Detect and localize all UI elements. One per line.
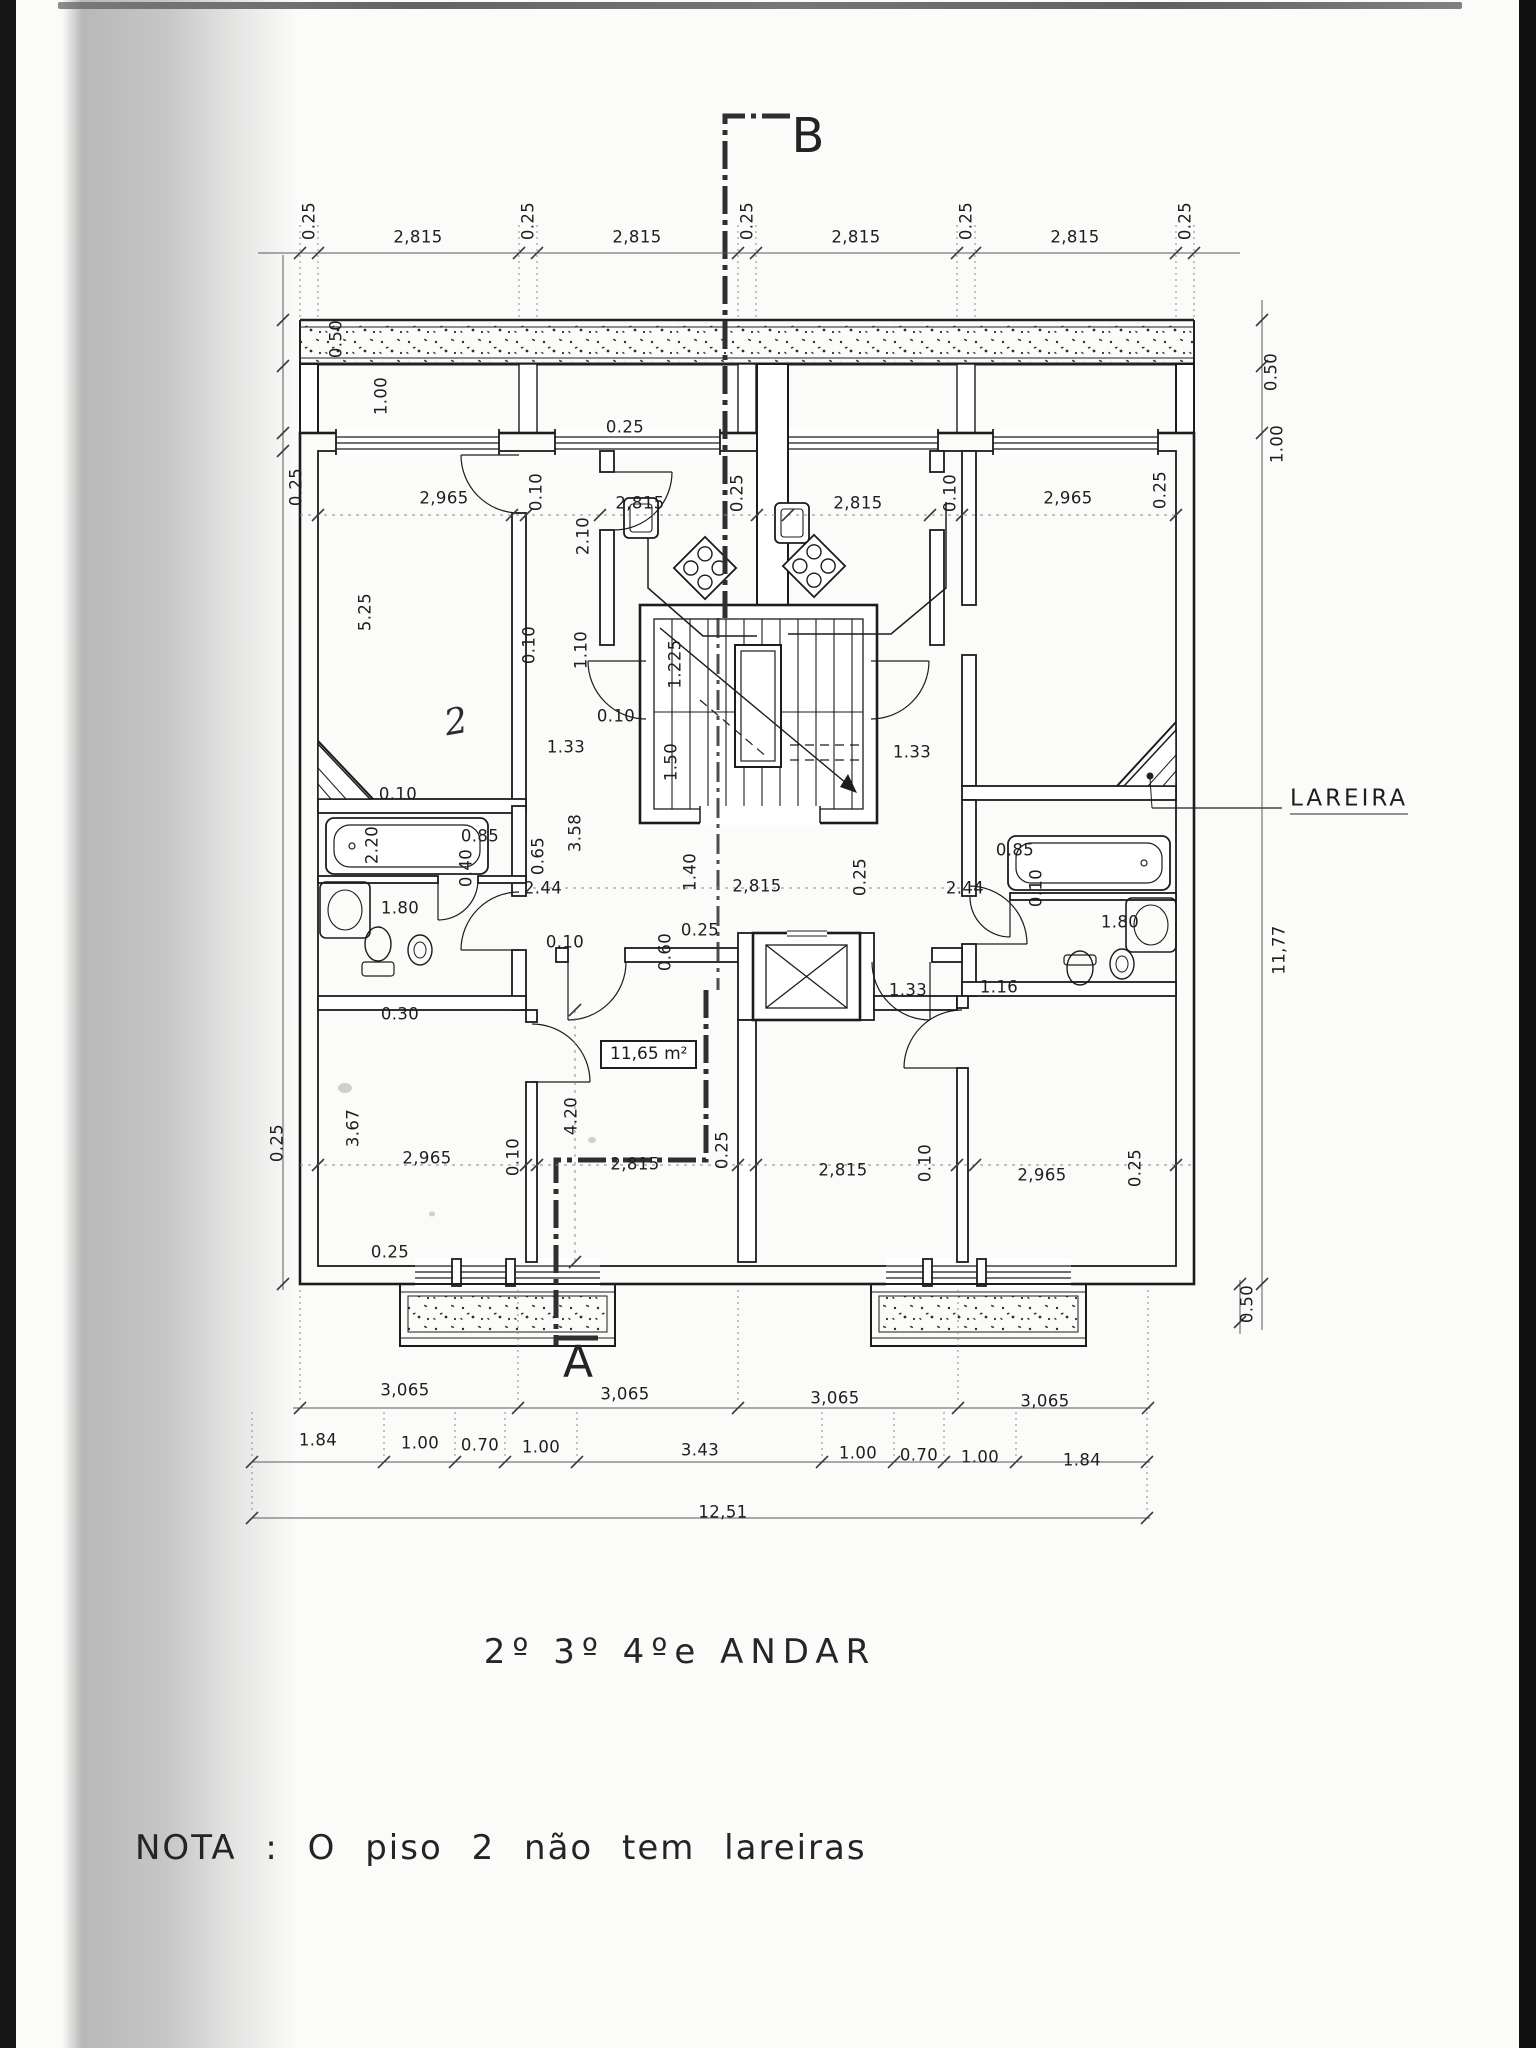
- section-marker-a: A: [563, 1337, 593, 1388]
- staircase: [640, 605, 877, 825]
- room-area-label: 11,65 m²: [600, 1040, 697, 1069]
- bathroom-left: [320, 818, 488, 976]
- bathroom-right: [1008, 836, 1176, 985]
- top-balcony: [300, 320, 1194, 433]
- scan-blemishes: [338, 1083, 596, 1217]
- fireplace-left: [318, 741, 373, 799]
- floorplan-drawing: [0, 0, 1536, 2048]
- bottom-balconies: [400, 1284, 1086, 1346]
- drawing-note: NOTA : O piso 2 não tem lareiras: [135, 1828, 867, 1868]
- drawing-title: 2º 3º 4ºe ANDAR: [420, 1632, 940, 1672]
- fireplace-label: LAREIRA: [1290, 786, 1408, 815]
- elevator: [753, 929, 860, 1020]
- section-marker-b: B: [792, 108, 825, 164]
- scanned-floor-plan-page: 0.252,8150.252,8150.252,8150.252,8150.25…: [0, 0, 1536, 2048]
